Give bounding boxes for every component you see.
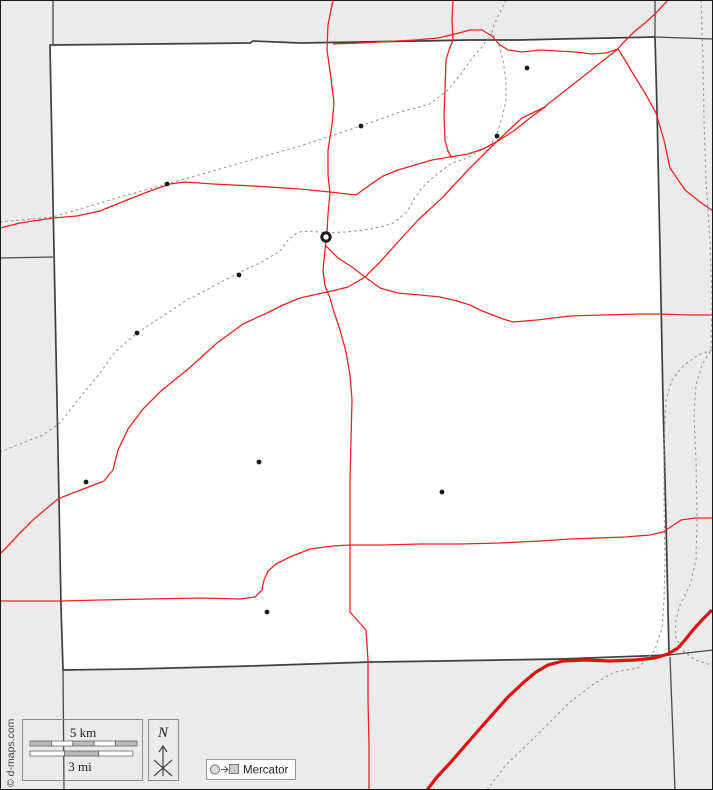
town-dot	[440, 490, 445, 495]
town-dot	[84, 480, 89, 485]
county-map: 5 km 3 mi N	[0, 0, 713, 790]
county-shape	[50, 37, 669, 670]
town-dot	[135, 331, 140, 336]
projection-box: Mercator	[207, 760, 296, 780]
north-label: N	[157, 725, 169, 741]
town-dot	[165, 182, 170, 187]
scale-mi-label: 3 mi	[68, 759, 92, 774]
county-seat-circle	[322, 233, 330, 241]
county-seat-marker	[322, 233, 330, 241]
projection-label: Mercator	[243, 765, 289, 777]
town-dot	[525, 66, 530, 71]
copyright-text: © d-maps.com	[5, 718, 17, 787]
county-boundary	[50, 37, 669, 670]
town-dot	[237, 273, 242, 278]
town-dot	[265, 610, 270, 615]
map-stage: 5 km 3 mi N	[0, 0, 713, 790]
scale-bar-km	[30, 741, 137, 746]
county-seat-circle-icon	[211, 765, 220, 774]
scale-bar-mi	[30, 751, 133, 756]
town-dot	[359, 124, 364, 129]
town-dot	[257, 460, 262, 465]
scale-km-label: 5 km	[70, 725, 96, 740]
town-dot	[495, 134, 500, 139]
town-square-icon	[230, 765, 239, 774]
